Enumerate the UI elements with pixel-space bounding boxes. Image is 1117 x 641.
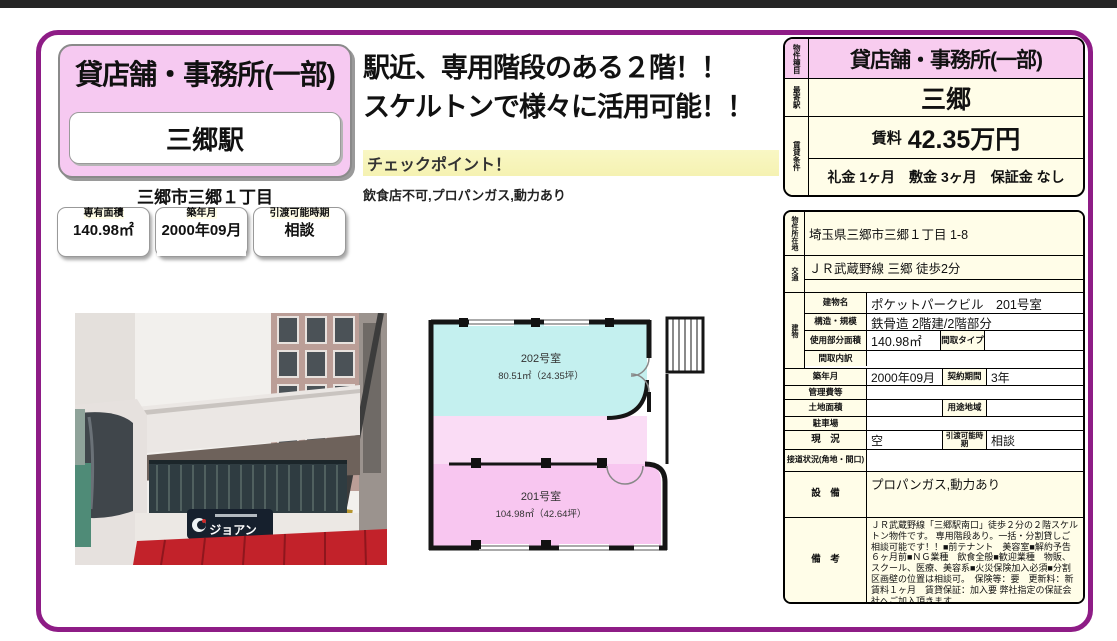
room-202-area — [433, 324, 647, 416]
status-label: 現 況 — [785, 431, 867, 449]
access-value-2 — [805, 280, 1083, 292]
floor-area-value: 140.98㎡ — [867, 331, 941, 350]
headline-line1: 駅近、専用階段のある２階！！ — [363, 49, 793, 88]
floor-plan: 202号室 80.51㎡（24.35坪） 201号室 104.98㎡（42.64… — [419, 300, 709, 564]
notes-label: 備 考 — [785, 518, 867, 602]
parking-value — [867, 417, 1083, 430]
floor-area-label: 使用部分面積 — [805, 331, 867, 350]
row-equipment: 設 備 プロパンガス,動力あり — [785, 472, 1083, 518]
shop-sign-text: ジョアン — [209, 523, 257, 537]
road-value — [867, 450, 1083, 471]
summary-row-station: 最寄駅 三郷 — [785, 79, 1083, 117]
row-built: 築年月 2000年09月 契約期間 3年 — [785, 369, 1083, 386]
summary-table: 物件種目 貸店舗・事務所(一部) 最寄駅 三郷 賃貸条件 賃料 42.35万円 … — [783, 37, 1085, 197]
headline: 駅近、専用階段のある２階！！ スケルトンで様々に活用可能！！ — [363, 49, 793, 127]
stat-value: 140.98㎡ — [69, 219, 138, 256]
equipment-value: プロパンガス,動力あり — [867, 472, 1083, 517]
headline-line2: スケルトンで様々に活用可能！！ — [363, 88, 793, 127]
row-road: 接道状況(角地・間口) — [785, 450, 1083, 472]
building-label: 建物 — [785, 293, 805, 368]
handover-value: 相談 — [987, 431, 1083, 449]
stat-value: 2000年09月 — [157, 219, 245, 256]
layout-detail-label: 間取内訳 — [805, 351, 867, 366]
room-201-area — [433, 464, 661, 546]
station-box: 三郷駅 — [69, 112, 341, 164]
contract-label: 契約期間 — [943, 369, 987, 385]
flyer-frame: 貸店舗・事務所(一部) 三郷駅 三郷市三郷１丁目 専有面積 140.98㎡ 築年… — [36, 30, 1093, 632]
room-201-area-label: 104.98㎡（42.64坪） — [496, 508, 587, 520]
checkpoint-text: 飲食店不可,プロパンガス,動力あり — [363, 185, 779, 204]
summary-label-property-type: 物件種目 — [785, 39, 809, 78]
location-value: 埼玉県三郷市三郷１丁目 1-8 — [805, 212, 1083, 255]
checkpoint-band: チェックポイント！ — [363, 150, 779, 176]
property-type-box: 貸店舗・事務所(一部) 三郷駅 — [58, 44, 352, 178]
parking-label: 駐車場 — [785, 417, 867, 430]
built-value: 2000年09月 — [867, 369, 943, 385]
room-202-area-label: 80.51㎡（24.35坪） — [498, 370, 584, 382]
stat-boxes: 専有面積 140.98㎡ 築年月 2000年09月 引渡可能時期 相談 — [57, 207, 357, 257]
access-label: 交通 — [785, 256, 805, 292]
adjacent-building — [75, 313, 135, 413]
row-land-area: 土地面積 用途地域 — [785, 400, 1083, 417]
summary-property-type: 貸店舗・事務所(一部) — [809, 39, 1083, 78]
summary-rent: 賃料 42.35万円 — [809, 117, 1083, 159]
property-type-title: 貸店舗・事務所(一部) — [60, 53, 350, 93]
summary-station: 三郷 — [809, 79, 1083, 116]
stat-box-handover: 引渡可能時期 相談 — [253, 207, 346, 257]
land-area-label: 土地面積 — [785, 400, 867, 416]
row-mgmt-fee: 管理費等 — [785, 386, 1083, 400]
summary-row-terms: 賃貸条件 賃料 42.35万円 礼金 1ヶ月 敷金 3ヶ月 保証金 なし — [785, 117, 1083, 195]
land-area-value — [867, 400, 943, 416]
summary-row-property-type: 物件種目 貸店舗・事務所(一部) — [785, 39, 1083, 79]
zoning-value — [987, 400, 1083, 416]
stat-label: 専有面積 — [84, 208, 124, 219]
layout-type-value — [985, 331, 1083, 350]
built-label: 築年月 — [785, 369, 867, 385]
building-name-label: 建物名 — [805, 293, 867, 313]
structure-value: 鉄骨造 2階建/2階部分 — [867, 314, 1083, 330]
stat-box-built: 築年月 2000年09月 — [155, 207, 248, 257]
row-access: 交通 ＪＲ武蔵野線 三郷 徒歩2分 — [785, 256, 1083, 293]
mgmt-fee-label: 管理費等 — [785, 386, 867, 399]
mgmt-fee-value — [867, 386, 1083, 399]
balcony-railing — [149, 463, 347, 513]
layout-type-label: 間取タイプ — [941, 331, 985, 350]
building-photo: ジョアン — [75, 313, 387, 565]
row-location: 物件所在地 埼玉県三郷市三郷１丁目 1-8 — [785, 212, 1083, 256]
road-label: 接道状況(角地・間口) — [785, 450, 867, 471]
detail-table: 物件所在地 埼玉県三郷市三郷１丁目 1-8 交通 ＪＲ武蔵野線 三郷 徒歩2分 … — [783, 210, 1085, 604]
status-value: 空 — [867, 431, 943, 449]
row-status: 現 況 空 引渡可能時期 相談 — [785, 431, 1083, 450]
room-202-name: 202号室 — [521, 351, 561, 365]
summary-fees: 礼金 1ヶ月 敷金 3ヶ月 保証金 なし — [809, 159, 1083, 195]
row-parking: 駐車場 — [785, 417, 1083, 431]
summary-label-station: 最寄駅 — [785, 79, 809, 116]
notes-value: ＪＲ武蔵野線「三郷駅南口」徒歩２分の２階スケルトン物件です。 専用階段あり。一括… — [867, 518, 1083, 602]
structure-label: 構造・規模 — [805, 314, 867, 330]
green-signboard — [75, 463, 91, 547]
short-address: 三郷市三郷１丁目 — [58, 183, 352, 208]
stat-label: 引渡可能時期 — [270, 208, 330, 219]
contract-value: 3年 — [987, 369, 1083, 385]
row-notes: 備 考 ＪＲ武蔵野線「三郷駅南口」徒歩２分の２階スケルトン物件です。 専用階段あ… — [785, 518, 1083, 602]
top-black-bar — [0, 0, 1117, 8]
stat-box-area: 専有面積 140.98㎡ — [57, 207, 150, 257]
layout-detail-value — [867, 351, 1083, 366]
building-name-value: ポケットパークビル 201号室 — [867, 293, 1083, 313]
location-label: 物件所在地 — [785, 212, 805, 255]
rent-value: 42.35万円 — [908, 120, 1021, 156]
stat-label: 築年月 — [187, 208, 217, 219]
stairs — [667, 318, 703, 372]
stat-value: 相談 — [280, 219, 318, 256]
zoning-label: 用途地域 — [943, 400, 987, 416]
rent-label: 賃料 — [872, 127, 902, 148]
summary-label-terms: 賃貸条件 — [785, 117, 809, 195]
handover-label: 引渡可能時期 — [943, 431, 987, 449]
access-value: ＪＲ武蔵野線 三郷 徒歩2分 — [805, 256, 1083, 279]
row-building: 建物 建物名 ポケットパークビル 201号室 構造・規模 鉄骨造 2階建/2階部… — [785, 293, 1083, 369]
equipment-label: 設 備 — [785, 472, 867, 517]
room-201-name: 201号室 — [521, 489, 561, 503]
